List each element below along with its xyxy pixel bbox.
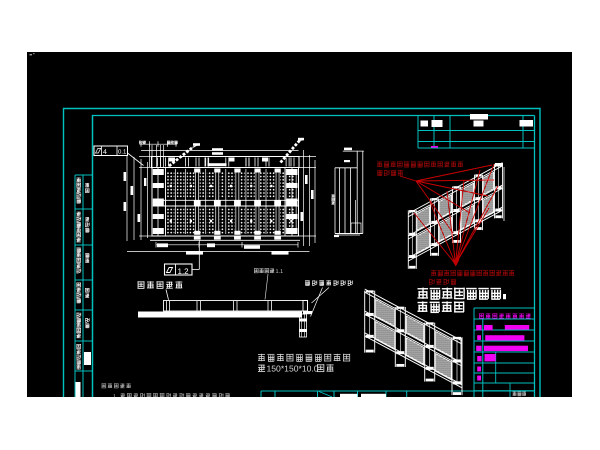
svg-text:4: 4 — [103, 149, 107, 156]
svg-text:1.1: 1.1 — [276, 269, 284, 275]
svg-text:0.1: 0.1 — [118, 149, 127, 156]
svg-text:150*150*10.0: 150*150*10.0 — [267, 364, 319, 374]
svg-text:1.2: 1.2 — [178, 267, 190, 276]
